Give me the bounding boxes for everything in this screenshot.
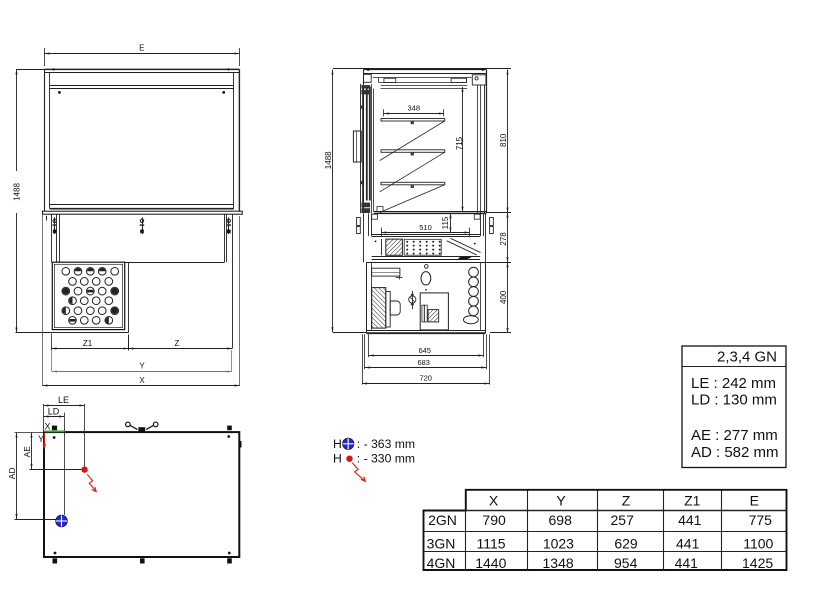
svg-text:115: 115	[441, 216, 450, 229]
svg-text:X: X	[489, 493, 499, 509]
svg-text:4GN: 4GN	[427, 555, 456, 571]
svg-text:790: 790	[482, 512, 506, 528]
svg-text:1488: 1488	[12, 183, 21, 201]
svg-text:Y: Y	[38, 434, 44, 444]
svg-text:2,3,4 GN: 2,3,4 GN	[717, 348, 777, 365]
svg-text:X: X	[44, 422, 50, 432]
svg-text:1115: 1115	[476, 536, 505, 552]
svg-text:1440: 1440	[475, 555, 506, 571]
svg-text:2GN: 2GN	[428, 512, 457, 528]
svg-text:X: X	[139, 376, 145, 385]
svg-text:698: 698	[549, 512, 573, 528]
svg-text:348: 348	[408, 104, 421, 113]
svg-text:AD: AD	[7, 467, 17, 479]
svg-text:257: 257	[611, 512, 635, 528]
svg-text:510: 510	[419, 223, 432, 232]
svg-text:645: 645	[418, 346, 431, 355]
svg-text:1425: 1425	[742, 555, 773, 571]
svg-text:400: 400	[499, 290, 508, 304]
svg-text:: - 363 mm: : - 363 mm	[357, 437, 415, 451]
svg-text:775: 775	[749, 512, 773, 528]
svg-text:1348: 1348	[543, 555, 574, 571]
svg-text:1488: 1488	[324, 151, 333, 169]
svg-text:1023: 1023	[543, 536, 574, 552]
svg-text:3GN: 3GN	[427, 536, 456, 552]
svg-text:Y: Y	[139, 362, 145, 371]
svg-text:954: 954	[614, 555, 638, 571]
svg-text:Z1: Z1	[83, 339, 93, 348]
svg-text:AD : 582 mm: AD : 582 mm	[691, 444, 779, 461]
svg-text:441: 441	[678, 512, 702, 528]
svg-text:LD: LD	[48, 407, 60, 417]
svg-text:H: H	[333, 452, 342, 466]
svg-text:Z: Z	[622, 493, 631, 509]
svg-text:AE : 277 mm: AE : 277 mm	[691, 427, 778, 444]
svg-text:720: 720	[419, 373, 432, 382]
svg-text:629: 629	[614, 536, 638, 552]
svg-text:Y: Y	[556, 493, 566, 509]
svg-text:AE: AE	[22, 446, 32, 458]
svg-text:E: E	[750, 493, 759, 509]
svg-text:278: 278	[499, 232, 508, 246]
svg-text:810: 810	[499, 133, 508, 147]
svg-text:H: H	[333, 437, 342, 451]
svg-text:Z: Z	[175, 339, 180, 348]
svg-text:441: 441	[676, 536, 700, 552]
svg-text:Z1: Z1	[684, 493, 701, 509]
svg-text:683: 683	[417, 358, 430, 367]
svg-text:715: 715	[455, 136, 464, 150]
svg-text:LE : 242 mm: LE : 242 mm	[691, 375, 776, 392]
svg-text:LD : 130 mm: LD : 130 mm	[691, 392, 777, 409]
svg-text:E: E	[139, 44, 144, 53]
svg-text:1100: 1100	[743, 536, 773, 552]
svg-text:LE: LE	[58, 395, 69, 405]
svg-text:: - 330 mm: : - 330 mm	[357, 452, 415, 466]
svg-text:441: 441	[675, 555, 699, 571]
